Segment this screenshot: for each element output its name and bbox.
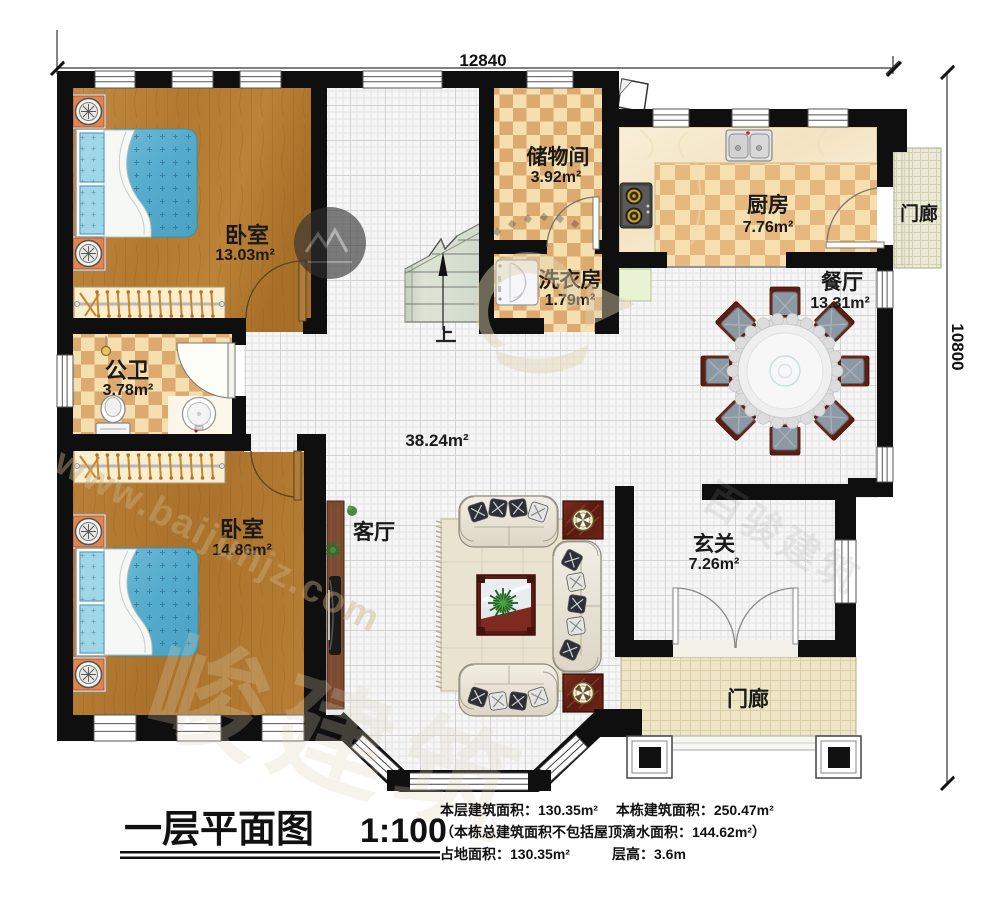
svg-text:7.26m²: 7.26m² xyxy=(689,556,740,573)
svg-text:餐厅: 餐厅 xyxy=(821,270,863,294)
svg-text:1:100: 1:100 xyxy=(360,812,447,850)
svg-text:占地面积：130.35m²: 占地面积：130.35m² xyxy=(440,846,570,862)
svg-text:10800: 10800 xyxy=(948,323,967,370)
svg-text:门廊: 门廊 xyxy=(900,202,938,225)
svg-text:门廊: 门廊 xyxy=(727,687,769,711)
svg-text:12840: 12840 xyxy=(459,51,506,70)
svg-text:公卫: 公卫 xyxy=(105,358,149,383)
svg-text:一层平面图: 一层平面图 xyxy=(124,809,314,851)
svg-text:玄关: 玄关 xyxy=(693,532,735,556)
svg-text:3.78m²: 3.78m² xyxy=(103,382,154,399)
svg-text:13.31m²: 13.31m² xyxy=(810,295,870,312)
svg-text:厨房: 厨房 xyxy=(747,193,789,217)
svg-text:13.03m²: 13.03m² xyxy=(215,247,275,264)
svg-text:（本栋总建筑面积不包括屋顶滴水面积：144.62m²）: （本栋总建筑面积不包括屋顶滴水面积：144.62m²） xyxy=(440,824,766,840)
svg-text:储物间: 储物间 xyxy=(527,145,590,169)
svg-text:38.24m²: 38.24m² xyxy=(405,431,469,450)
svg-text:层高：3.6m: 层高：3.6m xyxy=(612,846,686,862)
svg-text:7.76m²: 7.76m² xyxy=(743,219,794,236)
svg-text:本层建筑面积：130.35m² 本栋建筑面积：250.47: 本层建筑面积：130.35m² 本栋建筑面积：250.47m² xyxy=(440,802,774,818)
svg-text:3.92m²: 3.92m² xyxy=(531,169,582,186)
svg-text:客厅: 客厅 xyxy=(353,520,395,544)
svg-text:卧室: 卧室 xyxy=(225,223,269,248)
